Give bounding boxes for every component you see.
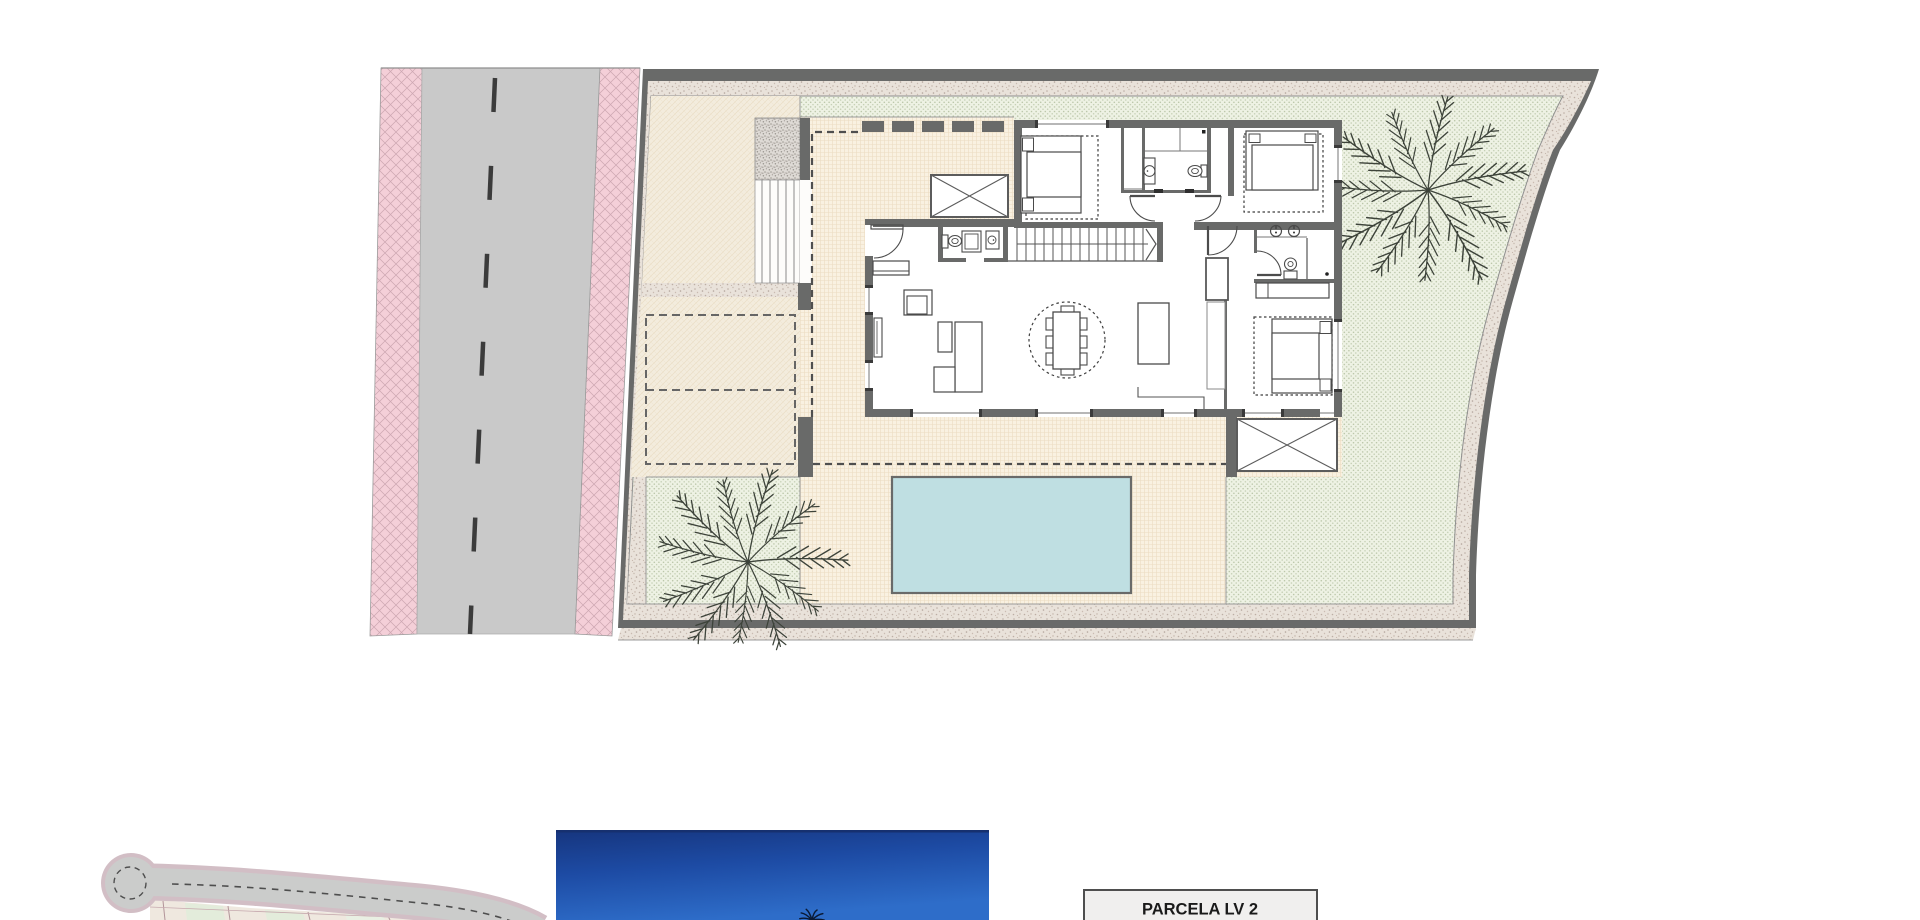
svg-text:PARCELA LV 2: PARCELA LV 2 [1142, 901, 1258, 919]
